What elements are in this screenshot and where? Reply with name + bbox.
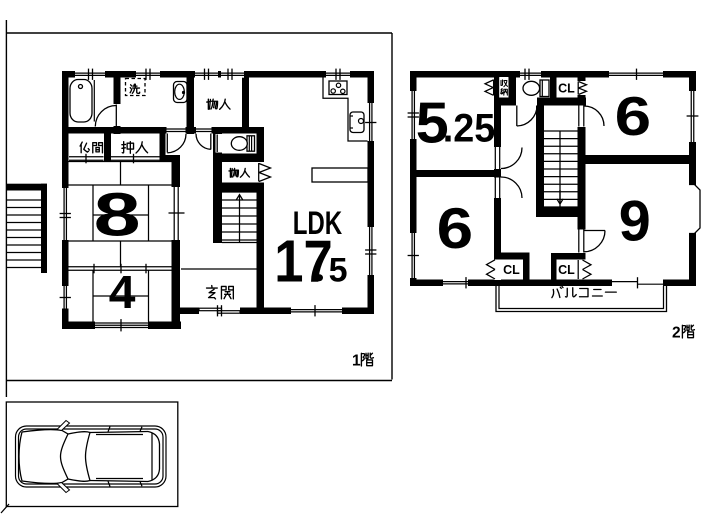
svg-text:5: 5: [329, 252, 348, 290]
svg-text:CL: CL: [503, 263, 520, 277]
svg-text:8: 8: [94, 181, 141, 249]
svg-text:4: 4: [109, 266, 136, 318]
svg-text:6: 6: [437, 197, 474, 261]
svg-text:CL: CL: [558, 82, 575, 96]
svg-text:17: 17: [274, 229, 333, 295]
svg-text:1: 1: [352, 353, 361, 370]
svg-text:9: 9: [619, 190, 651, 254]
svg-text:6: 6: [615, 86, 652, 147]
svg-text:2: 2: [672, 325, 681, 342]
svg-text:.25: .25: [443, 107, 496, 151]
svg-text:CL: CL: [558, 263, 575, 277]
